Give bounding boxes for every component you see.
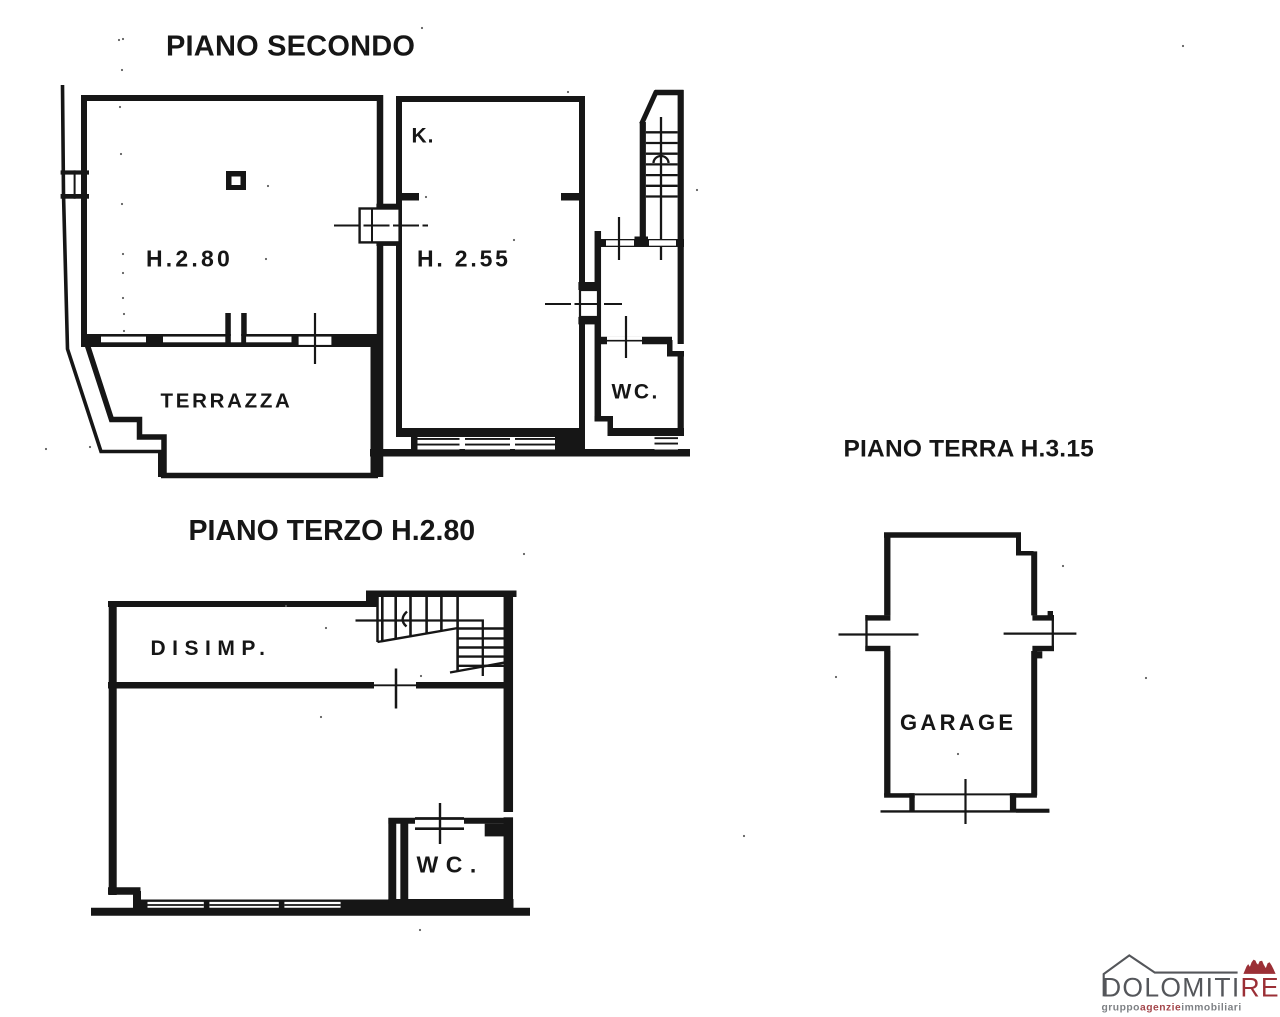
svg-text:H.2.80: H.2.80 — [146, 246, 233, 272]
svg-text:DISIMP.: DISIMP. — [151, 637, 272, 660]
svg-text:WC.: WC. — [612, 381, 660, 404]
svg-text:H. 2.55: H. 2.55 — [417, 246, 511, 272]
svg-text:gruppoagenzieimmobiliari: gruppoagenzieimmobiliari — [1102, 1002, 1242, 1013]
svg-text:K.: K. — [412, 125, 435, 148]
svg-text:WC.: WC. — [417, 852, 484, 878]
svg-text:PIANO SECONDO: PIANO SECONDO — [166, 31, 415, 63]
svg-text:PIANO TERRA H.3.15: PIANO TERRA H.3.15 — [844, 436, 1094, 463]
svg-text:DOLOMITIRE: DOLOMITIRE — [1102, 973, 1280, 1003]
svg-text:TERRAZZA: TERRAZZA — [161, 390, 293, 413]
svg-text:PIANO TERZO H.2.80: PIANO TERZO H.2.80 — [189, 515, 476, 547]
svg-text:GARAGE: GARAGE — [900, 710, 1016, 735]
